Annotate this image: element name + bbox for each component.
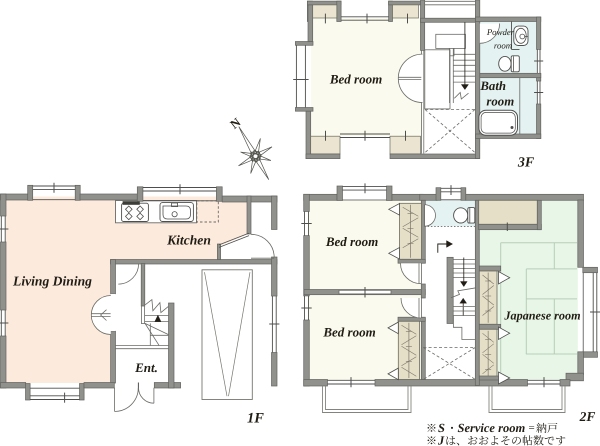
svg-text:=: = <box>529 422 535 434</box>
svg-text:Bed room: Bed room <box>329 71 382 86</box>
svg-text:Kitchen: Kitchen <box>166 232 211 247</box>
svg-text:room: room <box>486 95 514 109</box>
svg-text:1F: 1F <box>247 411 264 427</box>
svg-text:room: room <box>494 41 512 51</box>
svg-text:Bath: Bath <box>479 79 506 93</box>
svg-text:Powder: Powder <box>486 27 515 37</box>
svg-text:Bed room: Bed room <box>325 234 378 249</box>
svg-text:Service room: Service room <box>458 421 526 435</box>
svg-text:Living Dining: Living Dining <box>12 274 92 289</box>
svg-text:Ent.: Ent. <box>134 360 158 375</box>
svg-text:Japanese room: Japanese room <box>503 308 580 322</box>
svg-text:3F: 3F <box>517 156 535 171</box>
svg-text:2F: 2F <box>579 409 596 424</box>
svg-text:J: J <box>437 434 445 446</box>
svg-text:Bed room: Bed room <box>322 325 375 340</box>
